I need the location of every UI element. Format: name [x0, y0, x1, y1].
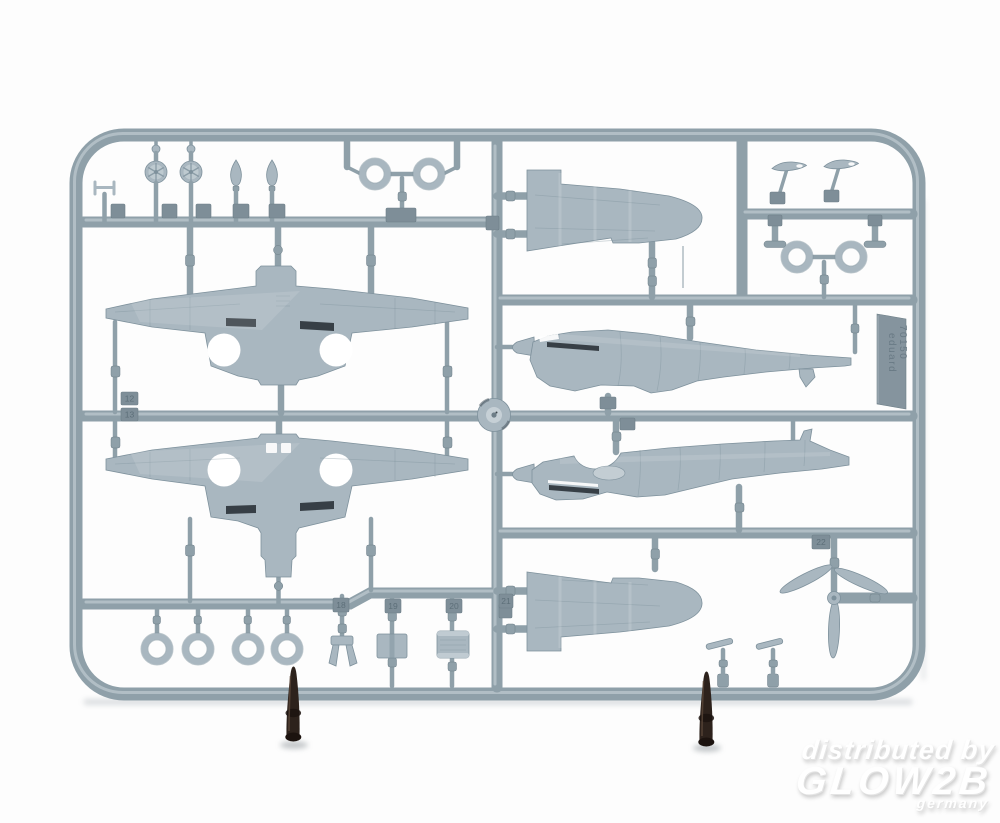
part-number-tab-19: 19	[385, 599, 401, 613]
part-number-tab-21: 21	[499, 594, 513, 608]
sprue-label-number: 70150	[897, 325, 908, 360]
svg-text:20: 20	[449, 601, 459, 611]
main-wheel-4	[271, 633, 303, 665]
fuselage-half-part-b	[513, 429, 850, 500]
svg-text:21: 21	[501, 596, 511, 606]
lower-wing-part-a	[106, 266, 468, 385]
molded-label-tag: 70150 eduard	[877, 314, 908, 409]
pitot-tube-part-2	[756, 638, 784, 687]
tire-ring-2	[413, 158, 445, 190]
sprue-photo-svg: 12 13 18 19 20 21 22 70150 ed	[0, 0, 1000, 823]
part-number-tab-20: 20	[446, 599, 462, 613]
main-wheel-rings	[141, 633, 303, 665]
part-number-tab-18: 18	[333, 598, 349, 612]
watermark-brand: GLOW2B	[794, 764, 993, 799]
upper-wing-panel-b	[527, 572, 702, 651]
blade-part-2	[824, 160, 859, 190]
main-wheel-1	[141, 633, 173, 665]
pitot-tube-part-1	[706, 638, 734, 687]
radiator-block-part-20	[437, 631, 469, 658]
svg-text:12: 12	[125, 394, 135, 404]
tire-ring-4	[835, 241, 867, 273]
sprue-gate	[478, 399, 511, 432]
svg-text:18: 18	[336, 600, 346, 610]
part-number-tab-12: 12	[121, 392, 138, 405]
tire-ring-1	[359, 158, 391, 190]
support-cone-left	[285, 667, 301, 742]
upper-wing-panel-a	[527, 170, 702, 288]
cowling-block-part-19	[377, 634, 407, 658]
cone-shadow-left	[280, 741, 308, 748]
sprue-label-brand: eduard	[886, 333, 897, 373]
main-wheel-3	[232, 633, 264, 665]
part-number-tab-13: 13	[121, 408, 138, 421]
support-cone-right	[698, 672, 714, 747]
main-wheel-2	[182, 633, 214, 665]
lower-wing-part-b	[106, 434, 468, 577]
svg-text:13: 13	[125, 410, 135, 420]
svg-text:19: 19	[388, 601, 398, 611]
svg-text:22: 22	[816, 537, 826, 547]
watermark: distributed by GLOW2B germany	[793, 736, 996, 811]
tire-ring-3	[781, 241, 813, 273]
fuselage-half-part-a	[513, 330, 852, 393]
photo-canvas: 12 13 18 19 20 21 22 70150 ed	[0, 0, 1000, 823]
blade-part-1	[772, 162, 807, 192]
part-number-tab-22: 22	[812, 535, 830, 549]
